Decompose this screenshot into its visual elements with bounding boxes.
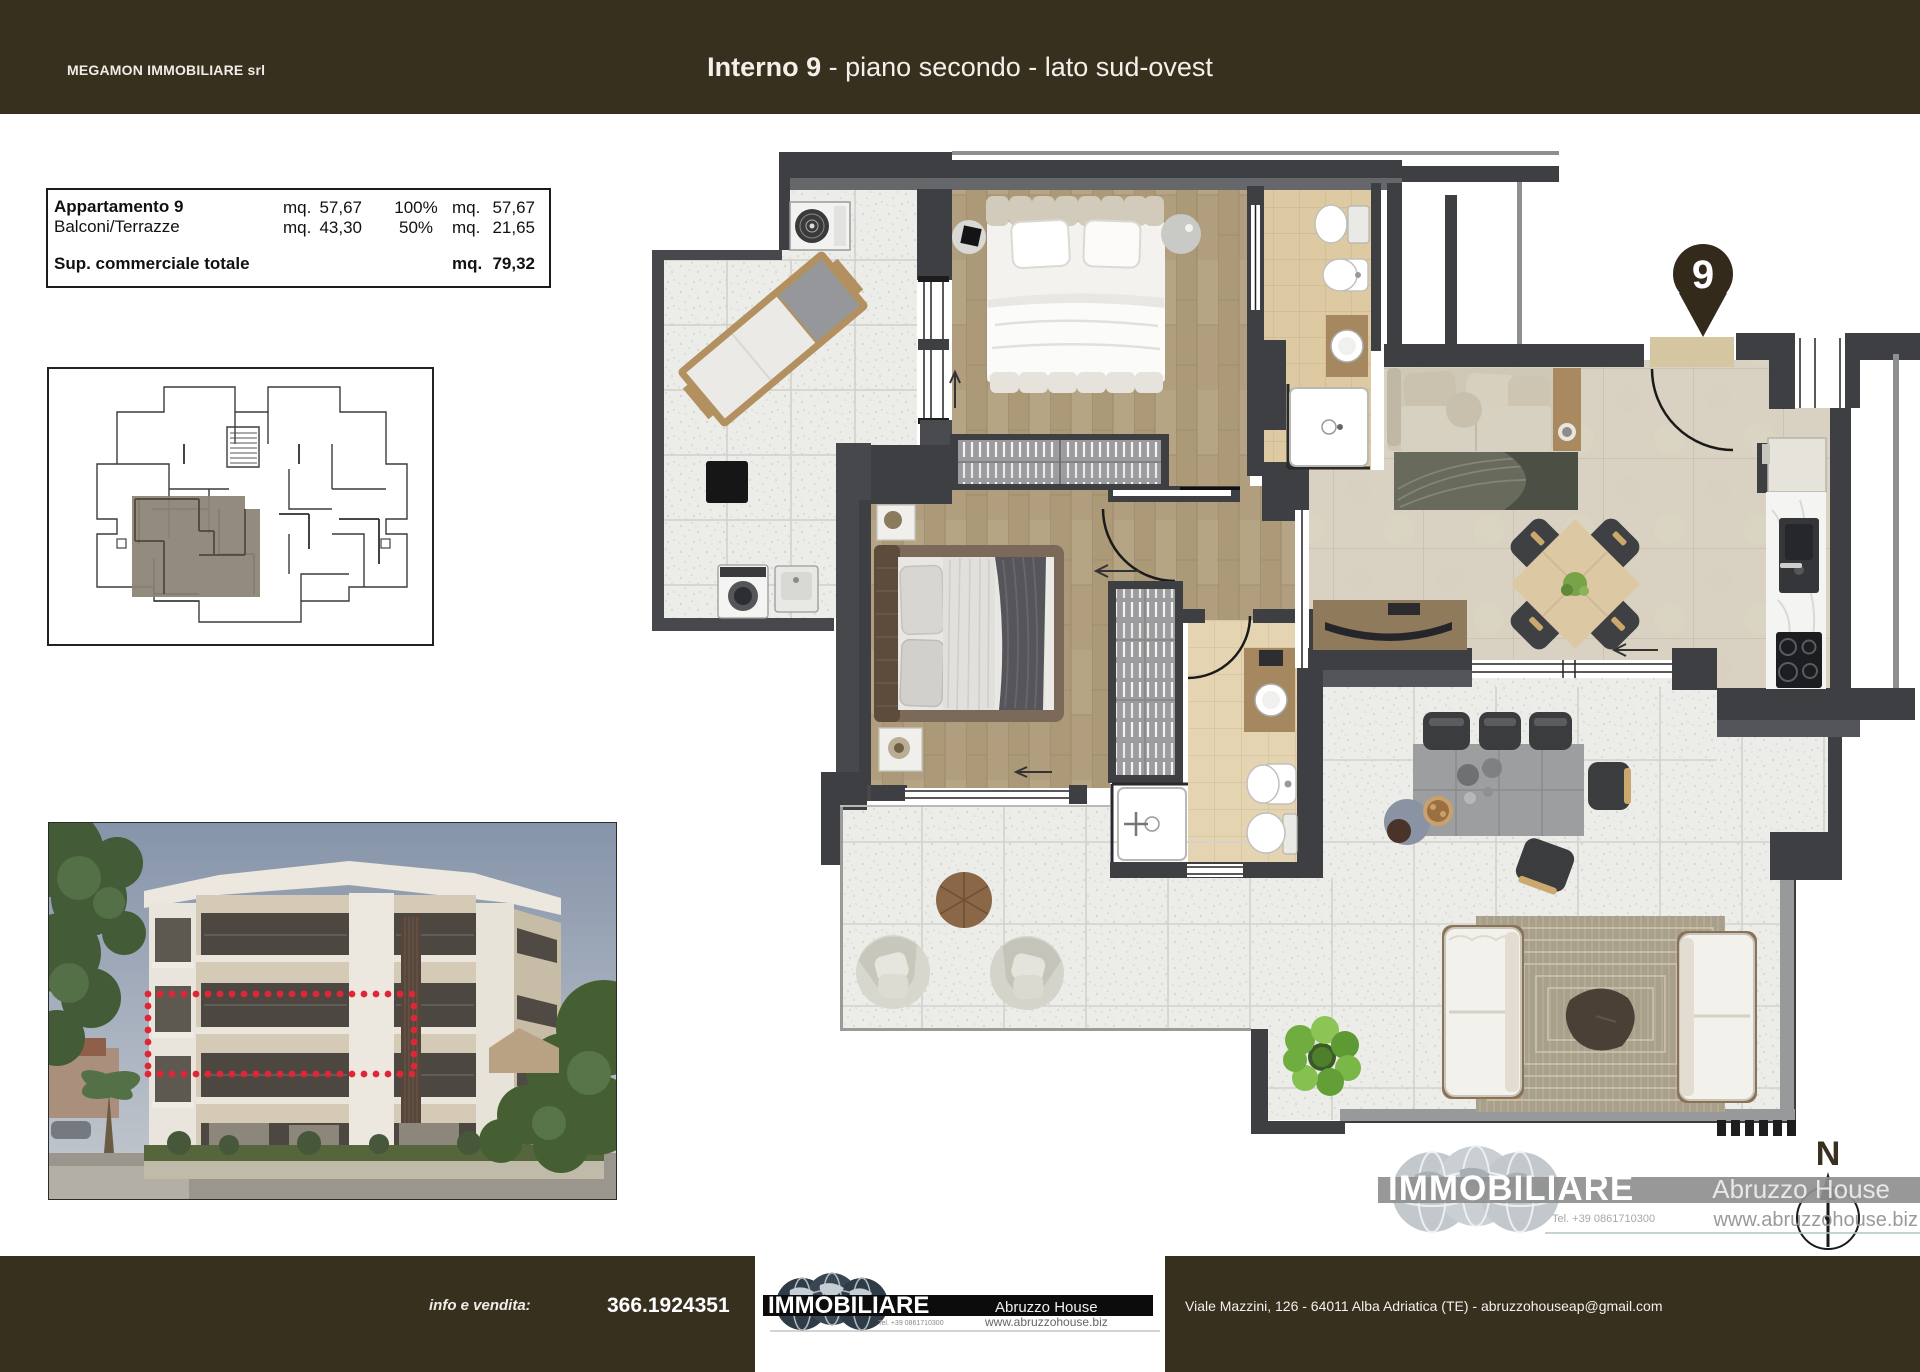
svg-text:Abruzzo House: Abruzzo House bbox=[995, 1299, 1098, 1316]
svg-text:IMMOBILIARE: IMMOBILIARE bbox=[1388, 1169, 1634, 1208]
svg-text:IMMOBILIARE: IMMOBILIARE bbox=[768, 1292, 929, 1319]
svg-text:Tel. +39 0861710300: Tel. +39 0861710300 bbox=[878, 1320, 944, 1327]
svg-text:www.abruzzohouse.biz: www.abruzzohouse.biz bbox=[1712, 1209, 1918, 1231]
svg-text:9: 9 bbox=[1692, 253, 1714, 297]
svg-text:www.abruzzohouse.biz: www.abruzzohouse.biz bbox=[984, 1315, 1108, 1329]
svg-text:Abruzzo House: Abruzzo House bbox=[1712, 1174, 1890, 1204]
svg-text:Tel. +39 0861710300: Tel. +39 0861710300 bbox=[1552, 1213, 1655, 1225]
